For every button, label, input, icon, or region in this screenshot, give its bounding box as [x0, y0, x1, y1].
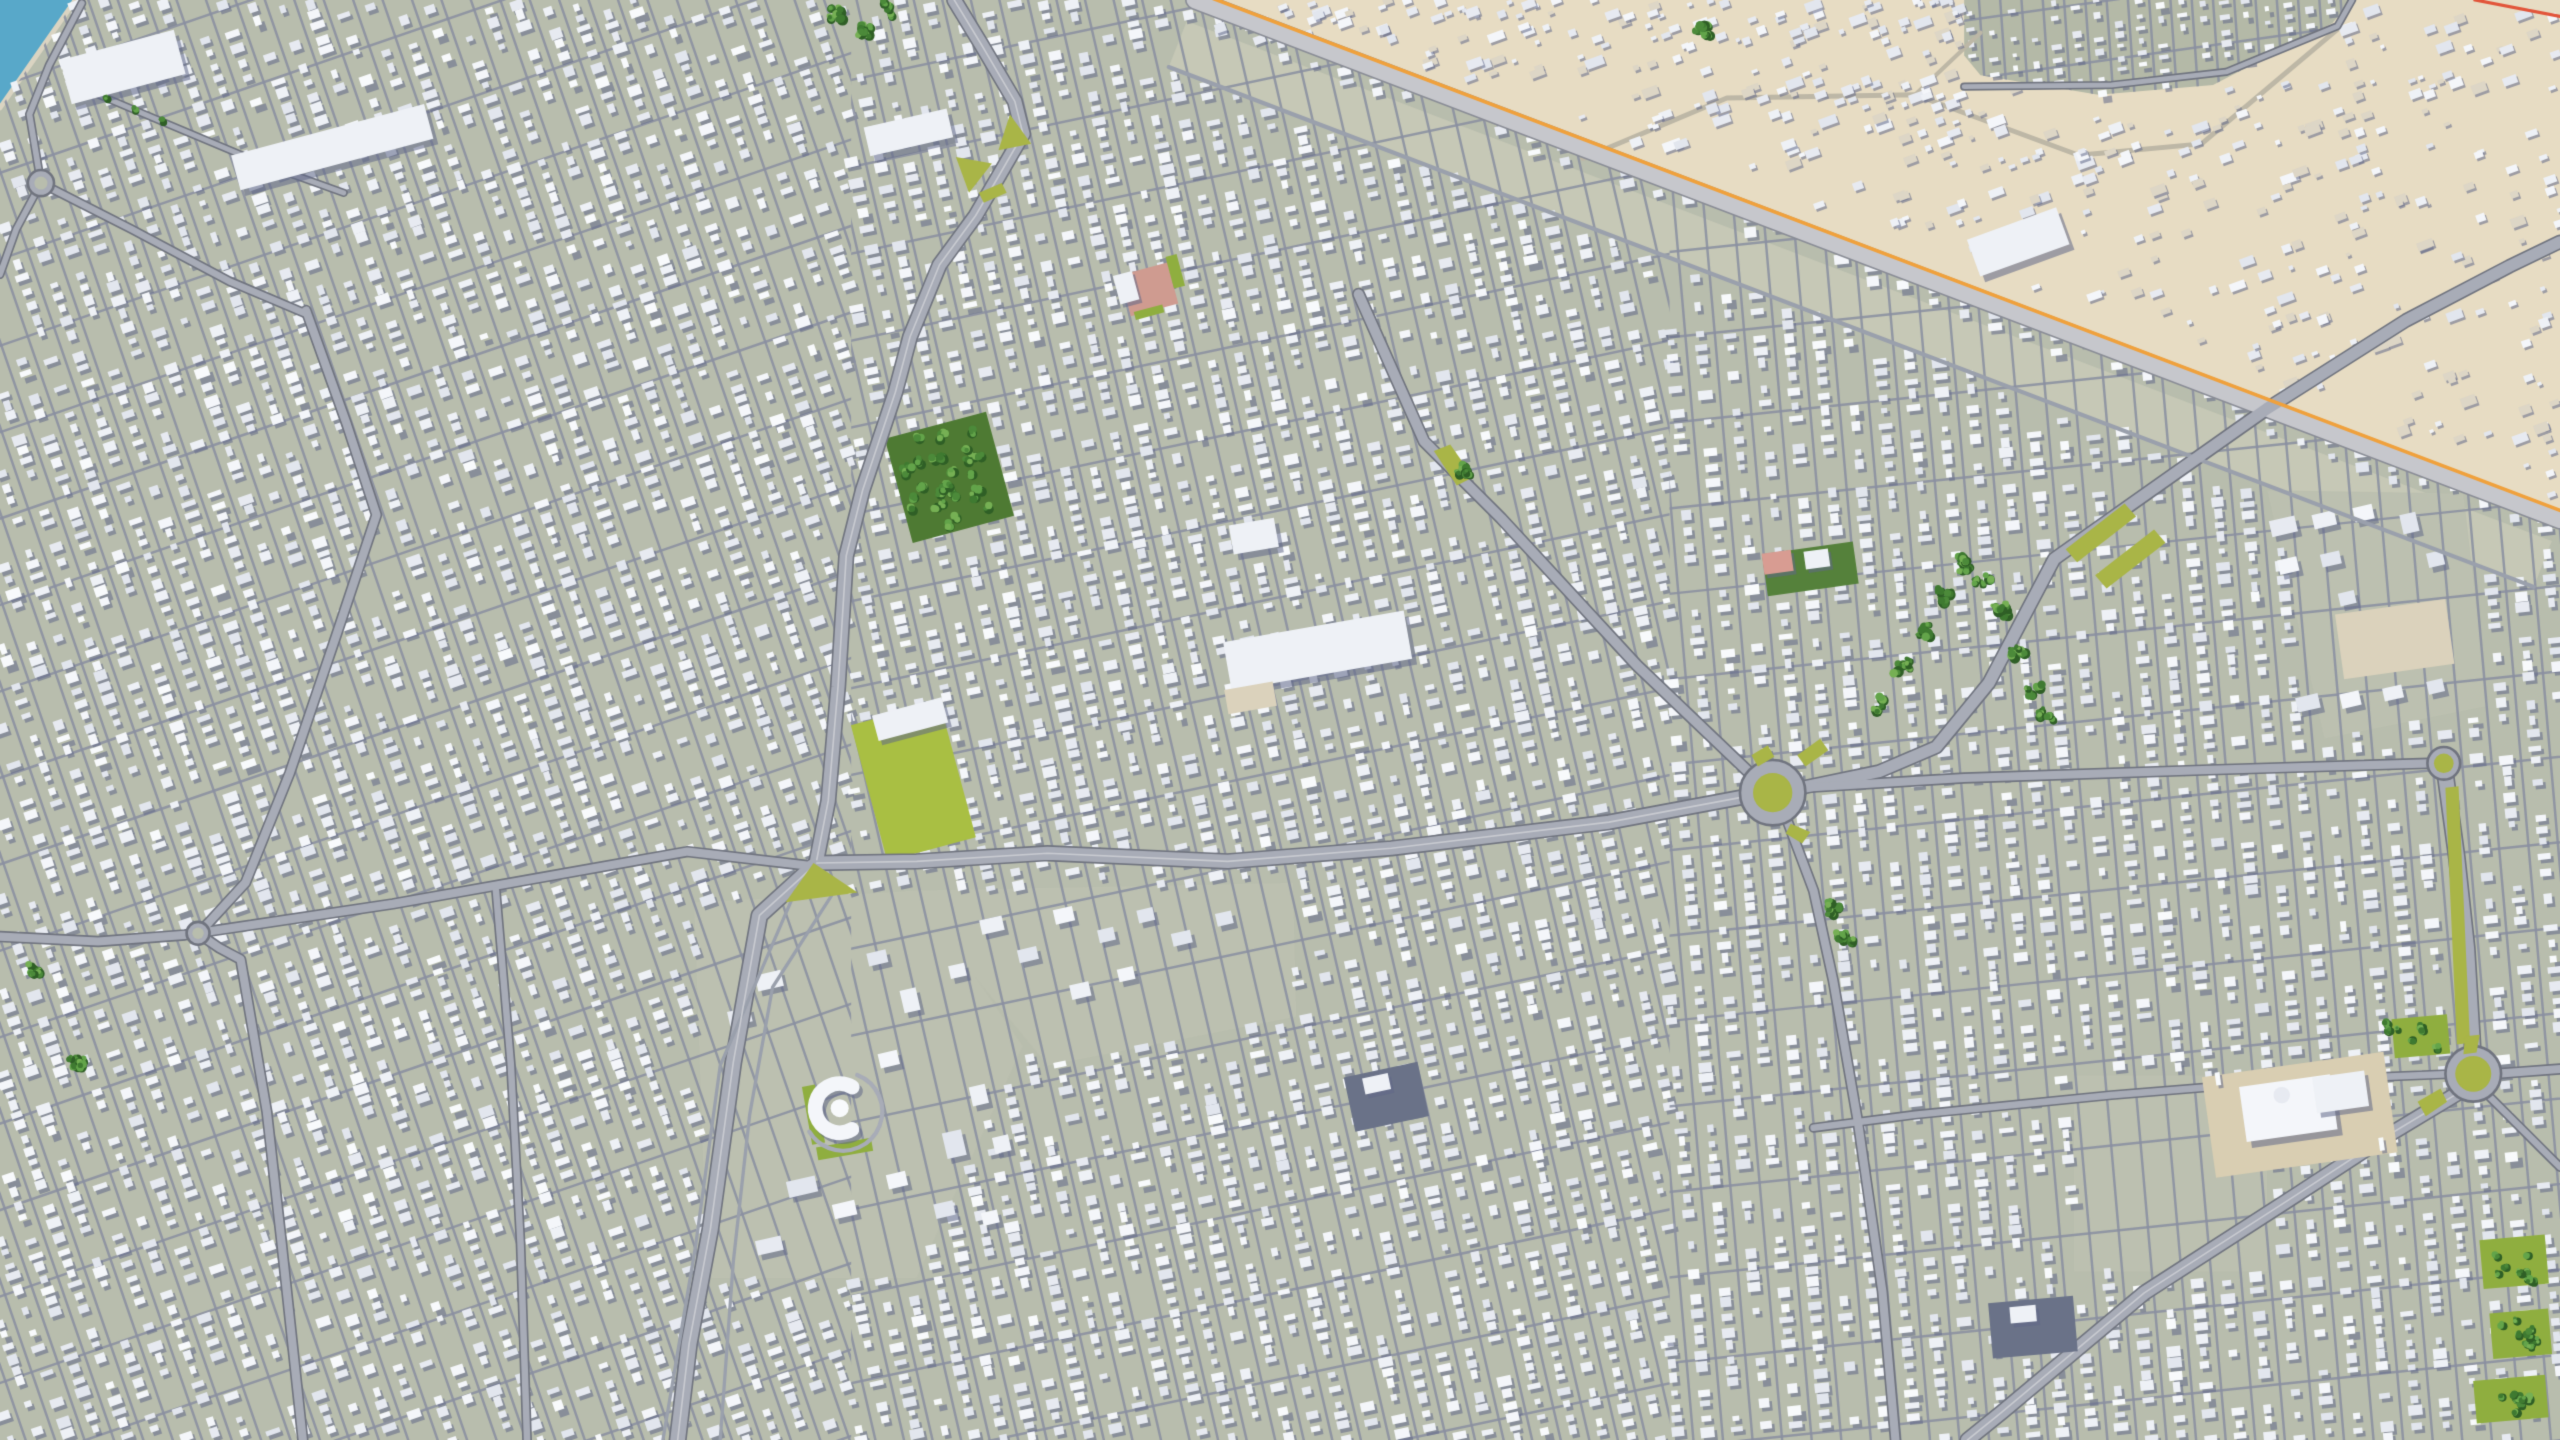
city-3d-render — [0, 0, 2560, 1440]
city-render-canvas — [0, 0, 2560, 1440]
